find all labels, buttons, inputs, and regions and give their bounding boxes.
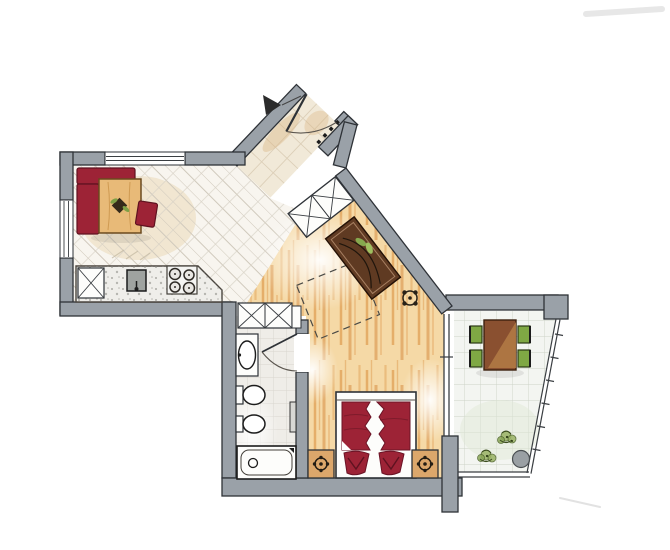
scan-smudge-bottom-right — [560, 498, 600, 507]
pillow-right — [379, 451, 404, 475]
wall-kitchen-bottom — [60, 302, 232, 316]
corner-bench-side — [77, 184, 99, 234]
bathtub — [237, 446, 296, 479]
nightstand-left — [308, 450, 334, 478]
toilet — [236, 386, 265, 405]
bathroom-closet — [238, 303, 301, 328]
bathroom-doorway — [294, 334, 310, 372]
wall-dining-top-right — [185, 152, 245, 165]
balcony-chair — [518, 350, 530, 367]
scan-smudge-top-right — [586, 9, 662, 14]
floor-plan-canvas — [0, 0, 670, 550]
balcony-table — [484, 320, 516, 370]
sink-faucet — [135, 287, 139, 291]
balcony-floor-tint — [460, 400, 540, 460]
wall-balcony-top — [446, 295, 558, 310]
basin-faucet — [238, 353, 241, 356]
wall-bathroom-right-lower — [296, 372, 308, 478]
balcony-chair — [470, 326, 482, 343]
planter-pot — [513, 451, 530, 468]
wall-bathroom-left — [222, 302, 236, 478]
balcony-chair — [470, 350, 482, 367]
wall-bedroom-balcony-stub — [442, 436, 458, 512]
bidet — [236, 415, 265, 433]
bathroom-radiator — [290, 402, 296, 432]
window-top — [105, 152, 185, 165]
wall-balcony-cap — [544, 295, 568, 319]
wall-left-upper — [60, 152, 73, 200]
wall-bottom — [222, 478, 462, 496]
balcony-chair — [518, 326, 530, 343]
pillow-left — [344, 451, 369, 475]
nightstand-right — [412, 450, 438, 478]
closet-step — [292, 306, 301, 328]
stove — [167, 266, 197, 294]
dining-table-shadow — [91, 233, 151, 243]
window-left — [60, 200, 73, 258]
washbasin-vanity — [236, 334, 258, 376]
dining-chair — [135, 201, 158, 228]
double-bed — [336, 392, 416, 478]
